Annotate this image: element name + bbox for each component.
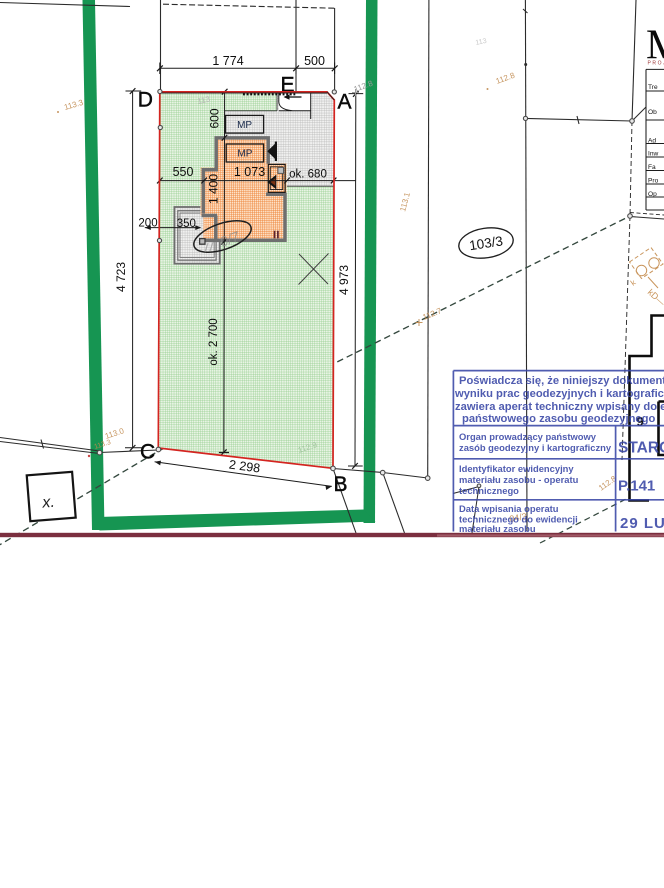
svg-text:PROJ: PROJ	[648, 61, 664, 67]
svg-text:Fa: Fa	[648, 164, 656, 171]
svg-text:B: B	[334, 473, 348, 496]
svg-text:ok. 2 700: ok. 2 700	[208, 318, 220, 365]
svg-text:D: D	[138, 89, 153, 112]
svg-text:600: 600	[208, 108, 222, 128]
svg-text:350: 350	[177, 218, 196, 230]
svg-text:STAROS: STAROS	[618, 440, 664, 457]
svg-text:państwowego zasobu geodezyjneg: państwowego zasobu geodezyjnego	[462, 413, 655, 425]
svg-text:P.141: P.141	[618, 478, 655, 495]
svg-text:Identyfikator ewidencyjny: Identyfikator ewidencyjny	[459, 463, 574, 474]
svg-text:550: 550	[173, 165, 194, 179]
svg-text:technicznego: technicznego	[459, 485, 519, 496]
svg-text:A: A	[338, 91, 352, 114]
svg-text:MP: MP	[237, 149, 252, 160]
svg-text:x.: x.	[41, 494, 56, 512]
svg-text:materiału zasobu: materiału zasobu	[459, 523, 536, 534]
svg-text:C: C	[140, 440, 155, 463]
svg-text:29 LU: 29 LU	[620, 515, 664, 532]
svg-text:Poświadcza się, że niniejszy d: Poświadcza się, że niniejszy dokument z	[459, 375, 664, 387]
svg-text:Pro: Pro	[648, 178, 659, 185]
svg-text:Ob: Ob	[648, 109, 657, 116]
svg-text:4 723: 4 723	[114, 262, 128, 292]
svg-text:ok. 680: ok. 680	[289, 169, 327, 181]
svg-text:zasób geodezyjny i kartografic: zasób geodezyjny i kartograficzny	[459, 442, 612, 453]
svg-text:4 973: 4 973	[337, 265, 351, 295]
svg-text:Ad: Ad	[648, 137, 656, 144]
svg-text:wyniku prac geodezyjnych i kar: wyniku prac geodezyjnych i kartograficz	[454, 388, 664, 400]
svg-text:Op: Op	[648, 191, 657, 198]
svg-text:Organ prowadzący państwowy: Organ prowadzący państwowy	[459, 431, 597, 442]
svg-text:materiału zasobu - operatu: materiału zasobu - operatu	[459, 474, 579, 485]
svg-text:1 073: 1 073	[234, 165, 265, 179]
svg-text:1 400: 1 400	[207, 174, 221, 204]
svg-text:1 774: 1 774	[212, 54, 243, 68]
svg-text:zawiera aperat techniczny wpis: zawiera aperat techniczny wpisany do e	[455, 401, 664, 413]
svg-text:Tre: Tre	[648, 84, 658, 91]
svg-text:MP: MP	[237, 120, 252, 131]
svg-text:500: 500	[304, 54, 325, 68]
svg-text:Inw: Inw	[648, 151, 658, 158]
svg-text:200: 200	[138, 217, 157, 229]
